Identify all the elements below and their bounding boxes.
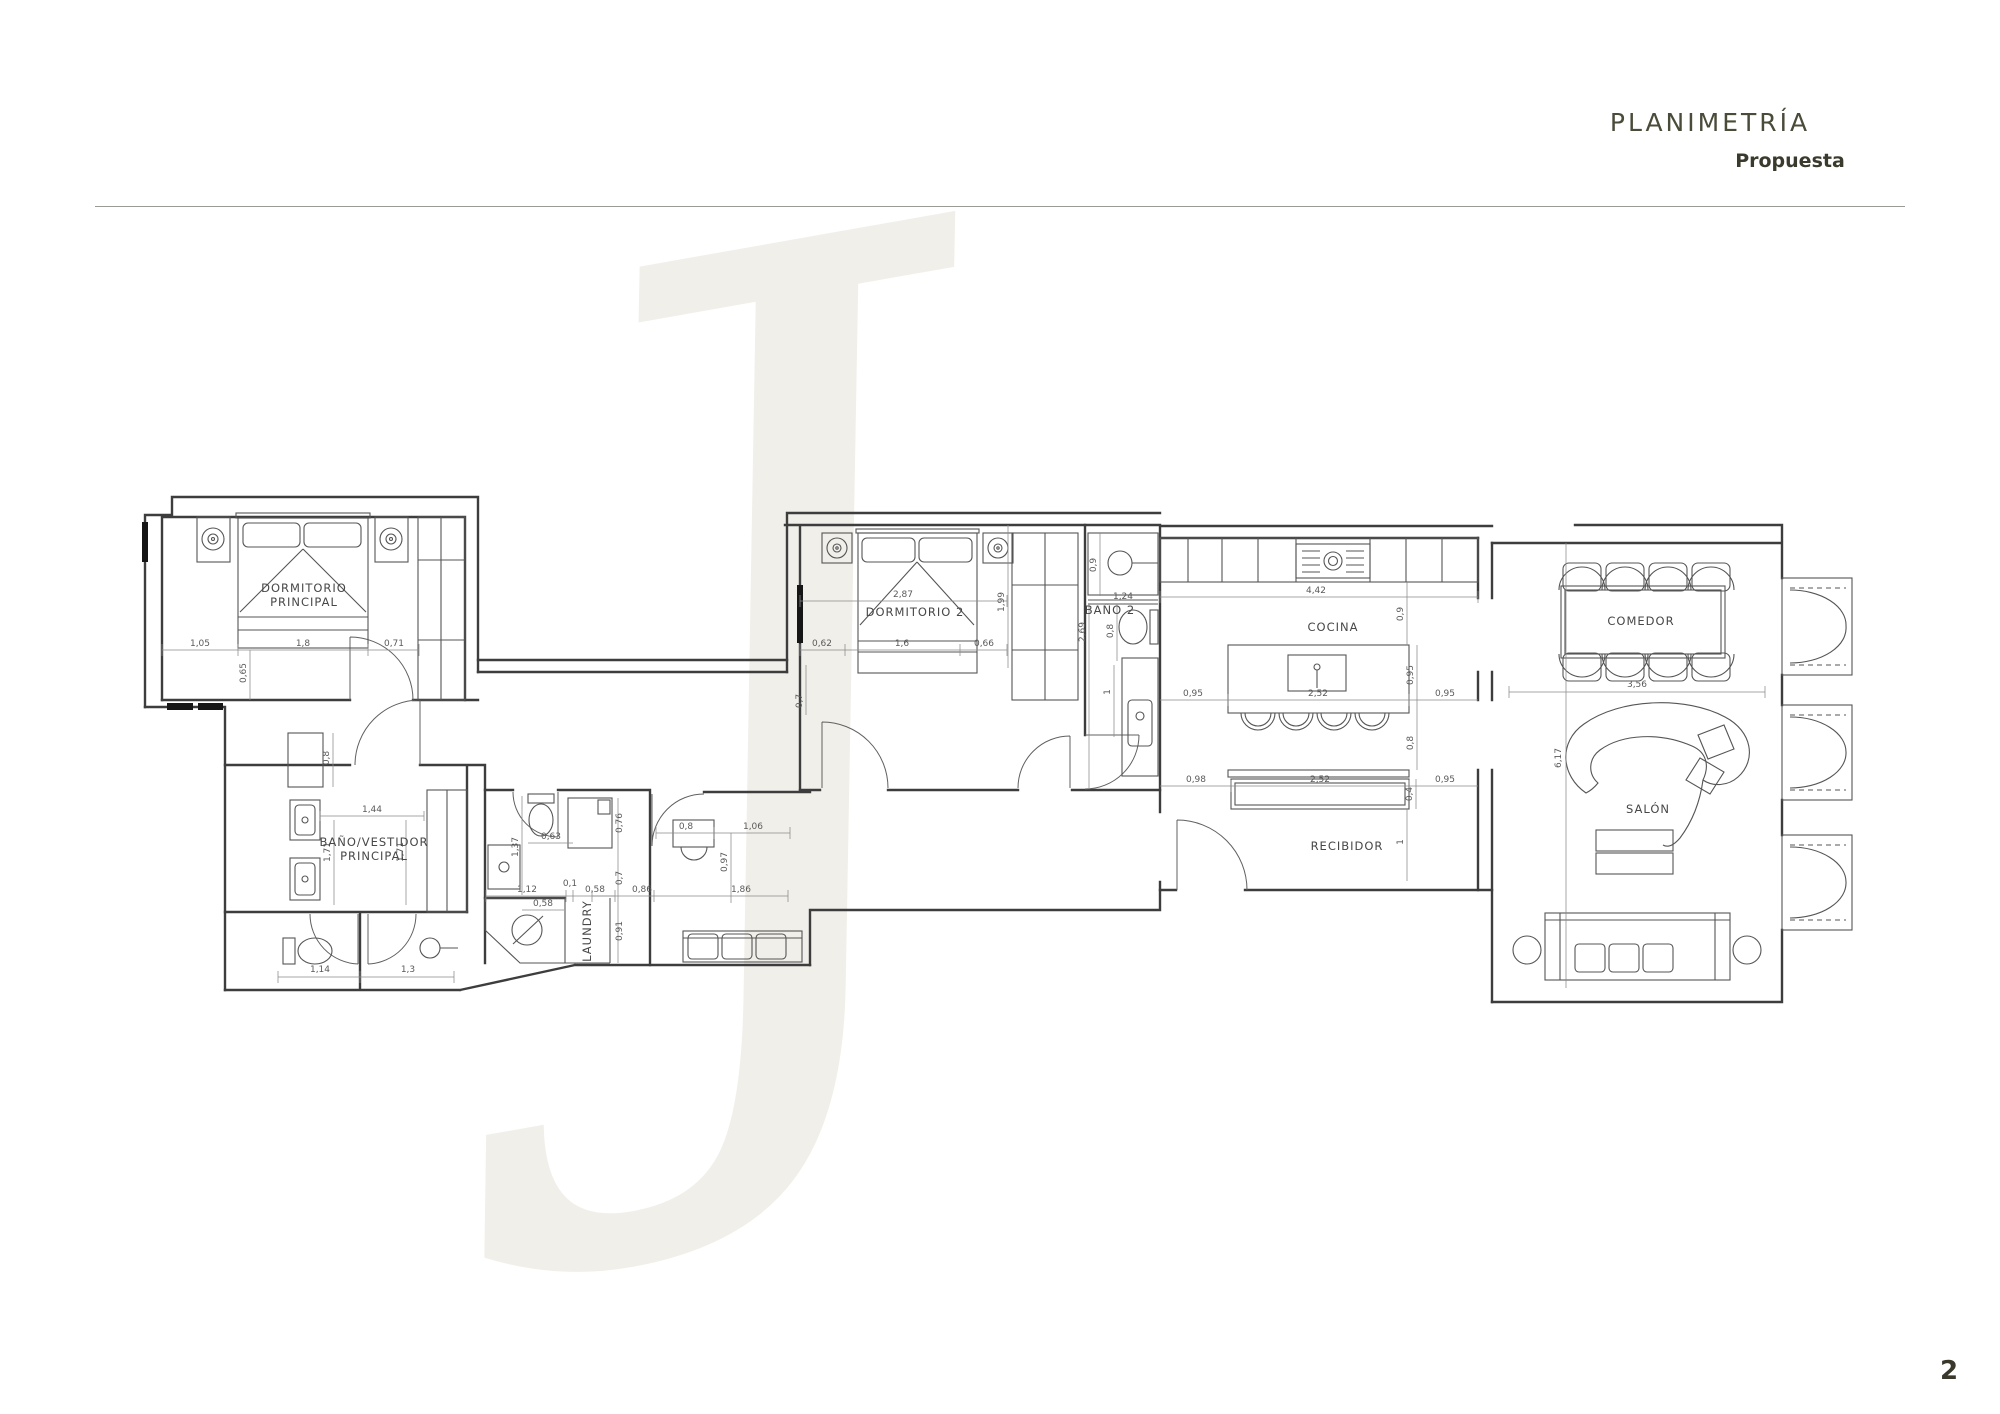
dim-label: 0,86 xyxy=(632,885,652,895)
dim-label: 0,8 xyxy=(1106,624,1116,639)
french-windows xyxy=(1782,578,1852,930)
dim-label: 6,17 xyxy=(1554,748,1564,768)
room-label-dormitorio-principal: DORMITORIO xyxy=(261,581,347,595)
dim-label: 0,63 xyxy=(541,832,561,842)
dim-label: 1,14 xyxy=(310,965,330,975)
plan-page: PLANIMETRÍA Propuesta J xyxy=(0,0,2000,1414)
dim-label: 3,56 xyxy=(1627,680,1647,690)
dim-label: 1,37 xyxy=(511,837,521,857)
floor-plan-drawing: J xyxy=(0,0,2000,1414)
dim-label: 0,9 xyxy=(1396,607,1406,622)
room-label-recibidor: RECIBIDOR xyxy=(1311,839,1384,853)
dim-label: 0,7 xyxy=(795,694,805,708)
dim-label: 0,62 xyxy=(812,639,832,649)
dim-label: 0,66 xyxy=(974,639,994,649)
dim-label: 1,86 xyxy=(731,885,751,895)
dim-label: 1,24 xyxy=(1113,592,1133,602)
room-label-bano-2: BAÑO 2 xyxy=(1085,602,1135,617)
dim-label: 2,52 xyxy=(1310,775,1330,785)
dim-label: 2,87 xyxy=(893,590,913,600)
dim-label: 4,42 xyxy=(1306,586,1326,596)
dim-label: 1,05 xyxy=(190,639,210,649)
dim-label: 0,8 xyxy=(322,751,332,766)
dim-label: 0,95 xyxy=(1406,665,1416,685)
dim-label: 0,58 xyxy=(585,885,605,895)
dim-label: 2,52 xyxy=(1308,689,1328,699)
dim-label: 1,06 xyxy=(743,822,763,832)
room-label-laundry: LAUNDRY xyxy=(580,900,594,962)
dim-label: 1,44 xyxy=(362,805,382,815)
room-label-salon: SALÓN xyxy=(1626,801,1670,816)
room-label-comedor: COMEDOR xyxy=(1607,614,1674,628)
watermark-monogram: J xyxy=(279,3,1138,1321)
dim-label: 0,7 xyxy=(615,871,625,885)
dim-label: 0,98 xyxy=(1186,775,1206,785)
dim-label: 0,1 xyxy=(563,879,577,889)
page-number: 2 xyxy=(1940,1356,1958,1386)
dim-label: 1,6 xyxy=(895,639,910,649)
dim-label: 0,91 xyxy=(615,921,625,941)
living-group xyxy=(1513,703,1761,980)
dim-label: 1 xyxy=(1103,689,1113,695)
dim-label: 0,8 xyxy=(679,822,694,832)
room-label-dormitorio-principal-2: PRINCIPAL xyxy=(270,595,338,609)
dim-label: 1,12 xyxy=(517,885,537,895)
dim-label: 1 xyxy=(1396,839,1406,845)
dim-label: 0,65 xyxy=(239,663,249,683)
dim-label: 0,9 xyxy=(1089,558,1099,573)
room-label-cocina: COCINA xyxy=(1308,620,1359,634)
room-label-bano-vestidor: BAÑO/VESTIDOR xyxy=(319,834,428,849)
dim-label: 0,95 xyxy=(1435,775,1455,785)
dim-label: 0,76 xyxy=(615,813,625,833)
dim-label: 0,8 xyxy=(1406,736,1416,751)
master-wardrobe xyxy=(418,517,465,700)
dim-label: 1,3 xyxy=(401,965,415,975)
dim-label: 0,97 xyxy=(720,852,730,872)
dim-label: 0,95 xyxy=(1435,689,1455,699)
room-label-bano-vestidor-2: PRINCIPAL xyxy=(340,849,408,863)
kitchen-group xyxy=(1160,538,1478,809)
dim-label: 0,95 xyxy=(1183,689,1203,699)
dim-label: 0,4 xyxy=(1405,787,1415,802)
dim-label: 0,71 xyxy=(384,639,404,649)
dim-label: 1,99 xyxy=(997,592,1007,612)
room-label-dormitorio-2: DORMITORIO 2 xyxy=(866,605,965,619)
dim-label: 0,58 xyxy=(533,899,553,909)
dim-label: 2,69 xyxy=(1078,622,1088,642)
dim-label: 1,8 xyxy=(296,639,311,649)
